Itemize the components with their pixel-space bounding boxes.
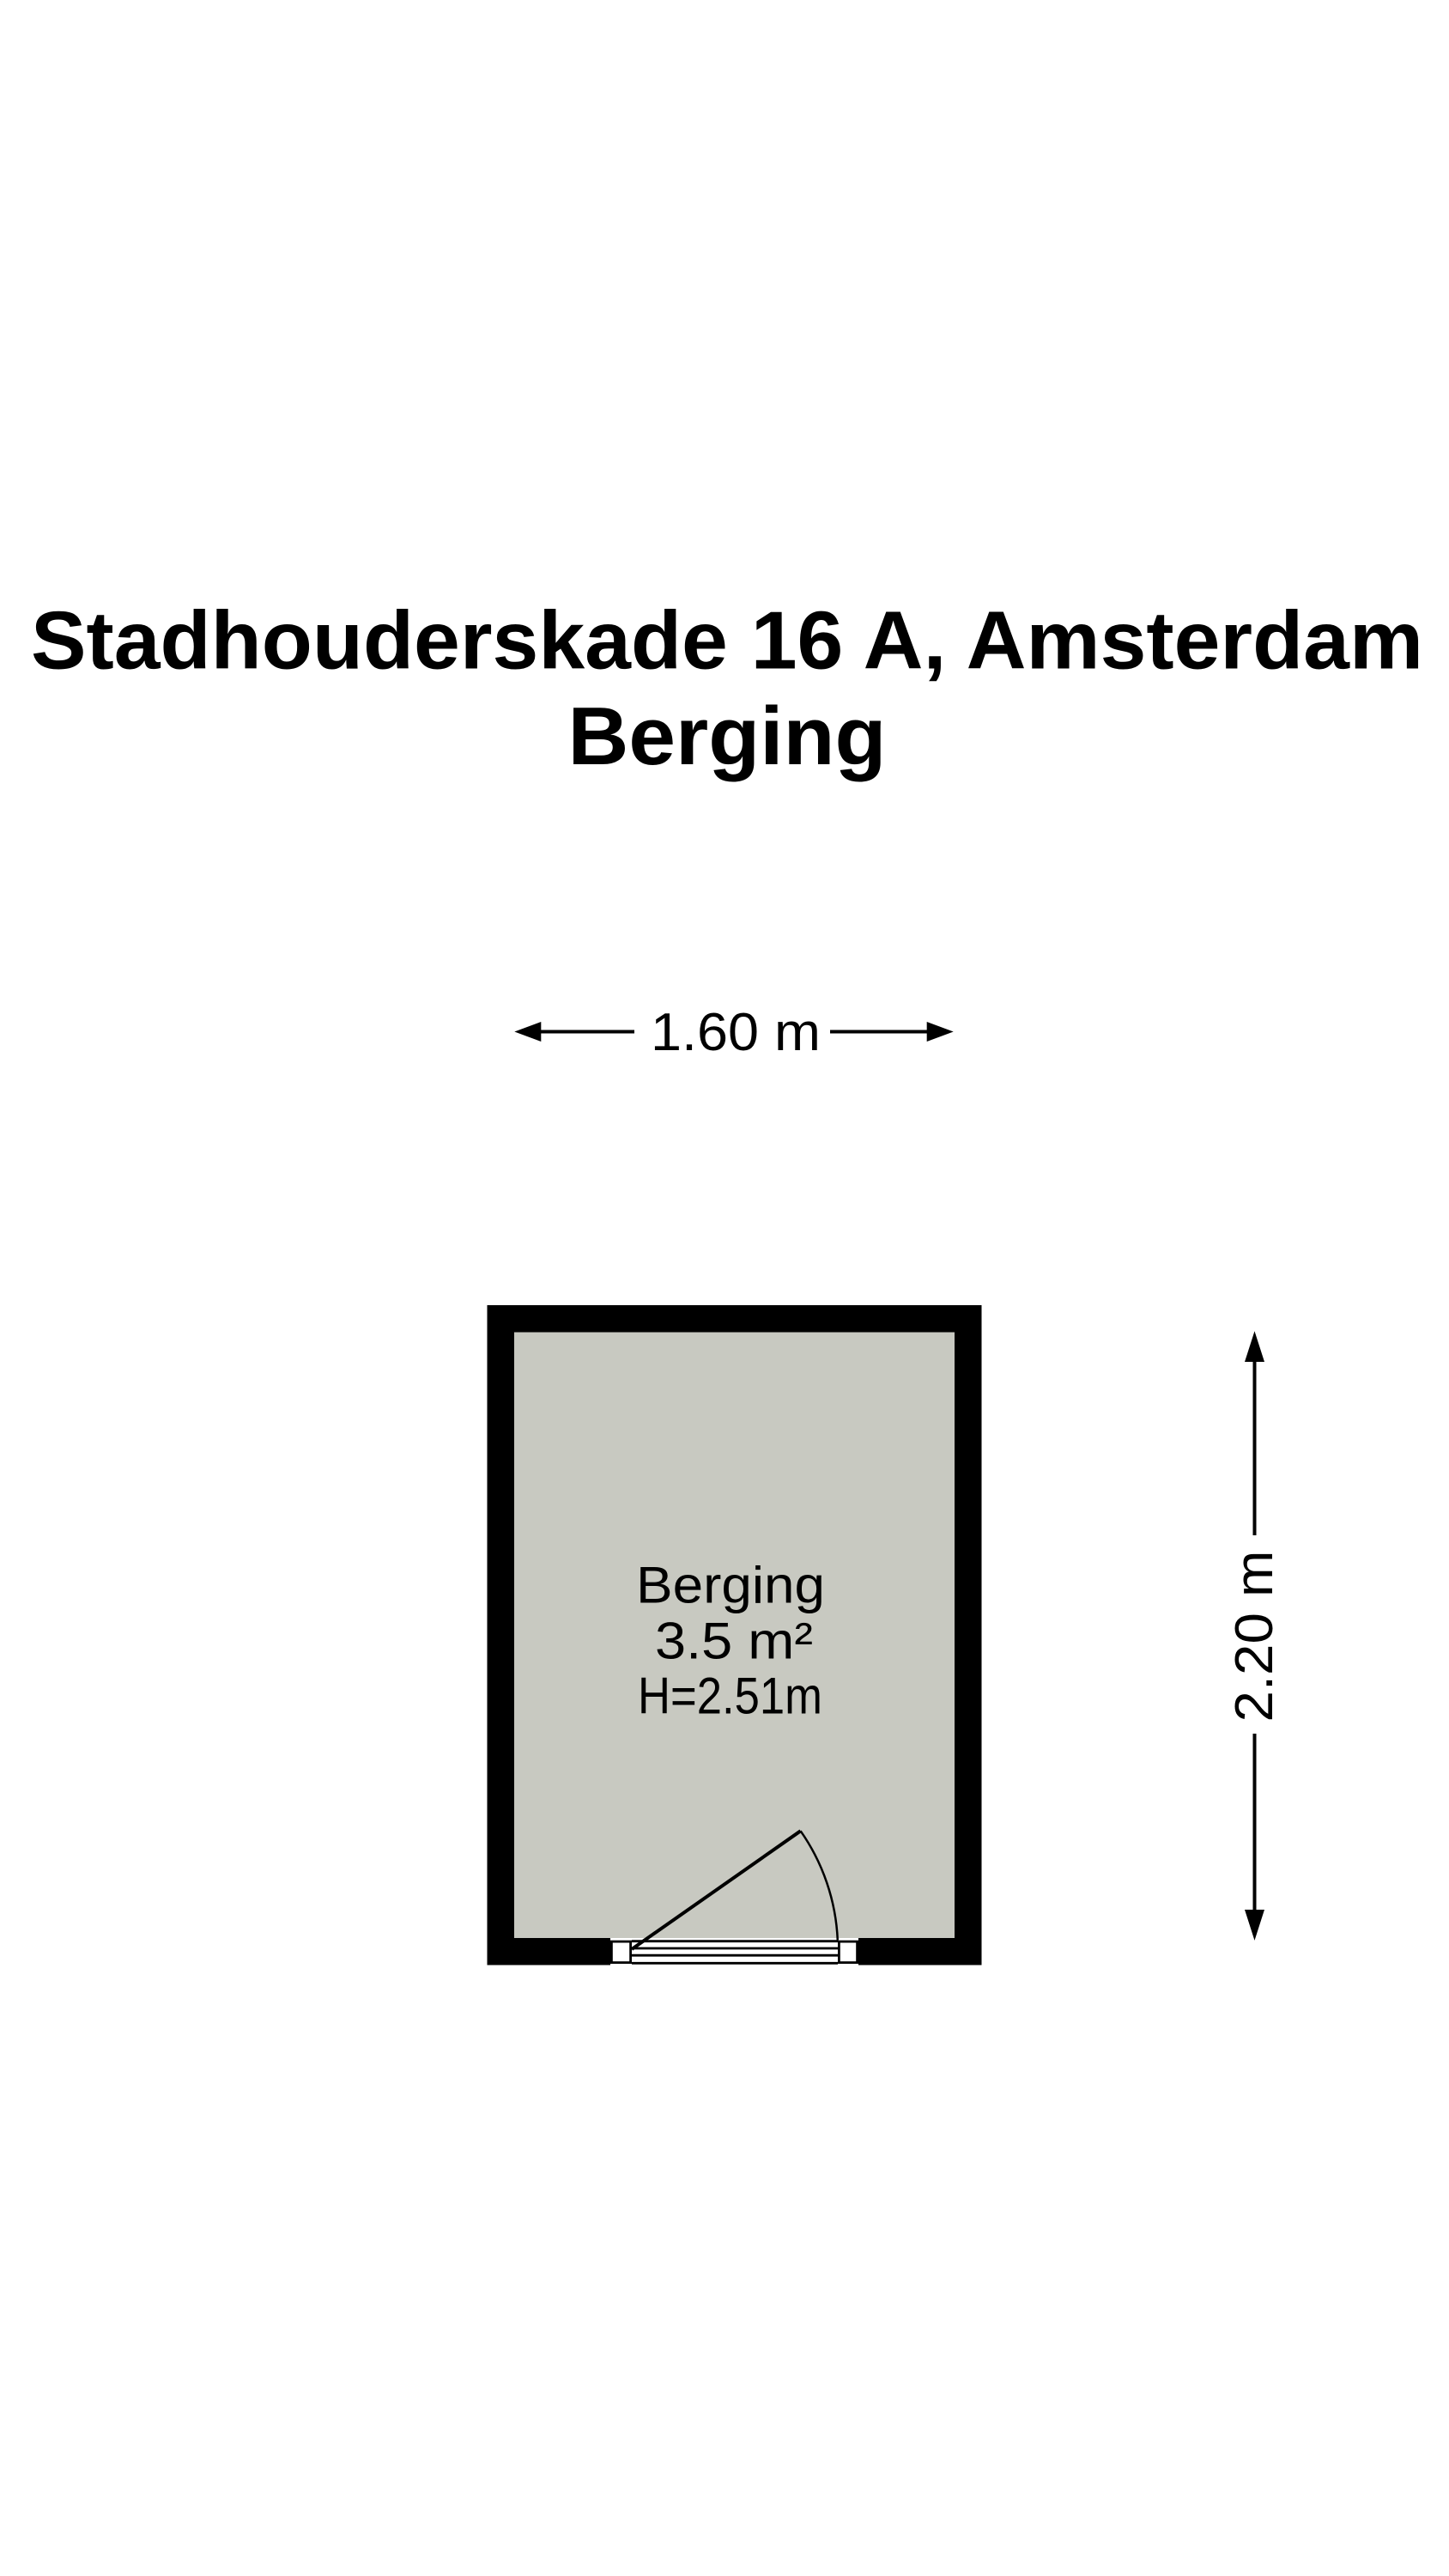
svg-text:2.20 m: 2.20 m [1225, 1551, 1284, 1722]
svg-text:1.60 m: 1.60 m [651, 1003, 821, 1062]
svg-text:Berging: Berging [636, 1557, 825, 1614]
svg-text:Berging: Berging [568, 690, 887, 782]
svg-text:H=2.51m: H=2.51m [638, 1668, 822, 1725]
svg-text:3.5 m²: 3.5 m² [655, 1612, 813, 1669]
svg-text:Stadhouderskade 16 A, Amsterda: Stadhouderskade 16 A, Amsterdam [31, 595, 1423, 687]
